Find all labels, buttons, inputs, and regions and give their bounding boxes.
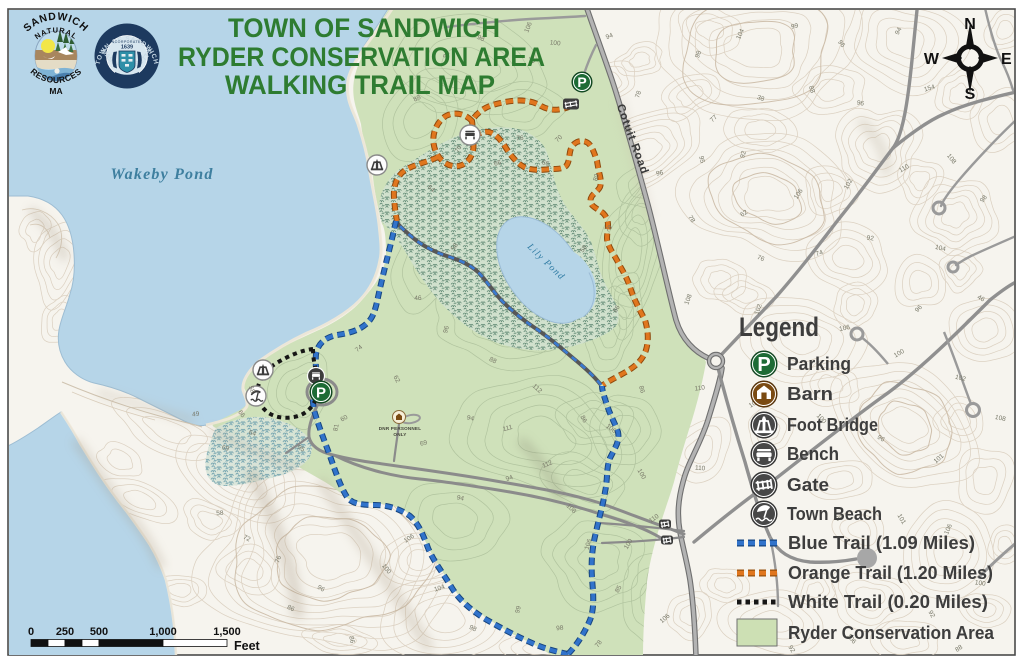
svg-text:Barn: Barn [787,384,833,404]
svg-text:250: 250 [56,626,74,638]
svg-text:0: 0 [28,626,34,638]
svg-text:Gate: Gate [787,475,829,495]
svg-text:Orange Trail (1.20 Miles): Orange Trail (1.20 Miles) [788,563,993,583]
svg-text:P: P [577,74,586,90]
svg-text:Bench: Bench [787,444,839,464]
svg-text:White Trail (0.20 Miles): White Trail (0.20 Miles) [788,592,988,612]
svg-text:Blue Trail (1.09 Miles): Blue Trail (1.09 Miles) [788,533,975,553]
svg-text:WALKING TRAIL MAP: WALKING TRAIL MAP [225,70,495,100]
svg-text:500: 500 [90,626,108,638]
svg-text:46: 46 [414,295,422,302]
svg-text:N: N [964,16,976,33]
svg-text:100: 100 [549,39,561,47]
svg-text:1639: 1639 [121,45,133,51]
svg-text:RYDER CONSERVATION AREA: RYDER CONSERVATION AREA [178,42,545,72]
svg-text:92: 92 [866,235,875,243]
svg-text:98: 98 [556,625,564,633]
svg-text:Parking: Parking [787,354,851,374]
svg-text:Town Beach: Town Beach [787,504,882,524]
svg-text:MA: MA [49,86,62,96]
svg-text:S: S [965,86,976,103]
svg-text:58: 58 [216,510,224,518]
svg-text:Legend: Legend [739,312,819,342]
svg-text:ONLY: ONLY [393,432,406,437]
svg-text:Ryder Conservation Area: Ryder Conservation Area [788,623,995,643]
svg-text:76: 76 [516,135,524,142]
svg-text:TOWN OF SANDWICH: TOWN OF SANDWICH [228,13,500,43]
svg-text:DNR PERSONNEL: DNR PERSONNEL [379,426,421,431]
svg-text:1,500: 1,500 [213,626,241,638]
svg-text:110: 110 [694,384,706,392]
svg-text:Feet: Feet [234,639,261,653]
svg-text:110: 110 [695,465,706,473]
svg-text:P: P [316,384,326,401]
svg-text:Foot Bridge: Foot Bridge [787,415,878,435]
svg-text:49: 49 [192,411,200,419]
svg-text:1,000: 1,000 [149,626,177,638]
svg-text:W: W [924,51,940,68]
svg-text:E: E [1001,51,1012,68]
svg-text:P: P [757,354,770,376]
svg-text:72: 72 [624,127,632,134]
svg-text:Wakeby Pond: Wakeby Pond [110,166,213,183]
svg-text:INCORPORATED: INCORPORATED [110,40,144,44]
